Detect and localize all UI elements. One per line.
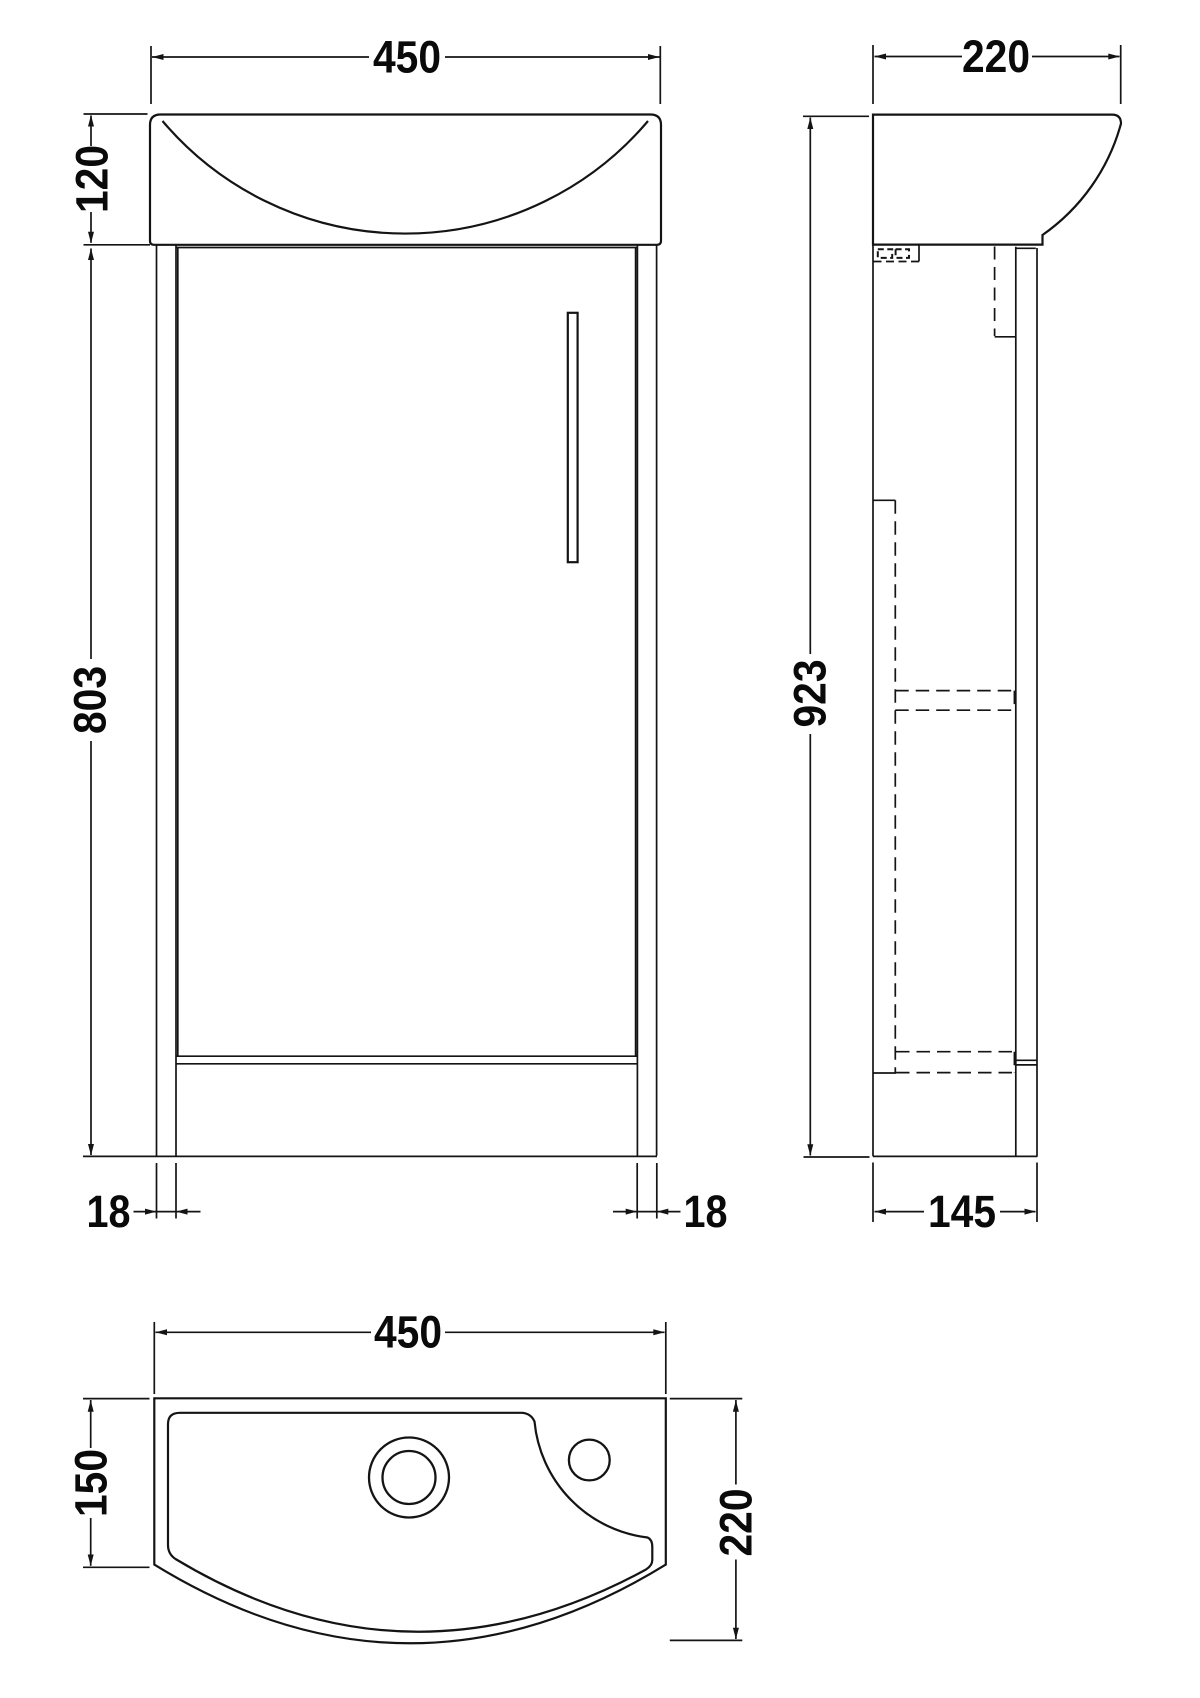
svg-text:803: 803 — [65, 666, 116, 734]
svg-text:18: 18 — [684, 1186, 728, 1237]
svg-text:450: 450 — [373, 32, 441, 83]
svg-text:145: 145 — [928, 1186, 996, 1237]
svg-text:120: 120 — [67, 145, 118, 213]
svg-text:150: 150 — [66, 1449, 117, 1517]
svg-text:18: 18 — [87, 1186, 131, 1237]
svg-text:220: 220 — [962, 31, 1030, 82]
svg-text:923: 923 — [785, 660, 836, 728]
svg-text:220: 220 — [711, 1489, 762, 1557]
svg-text:450: 450 — [374, 1307, 442, 1358]
